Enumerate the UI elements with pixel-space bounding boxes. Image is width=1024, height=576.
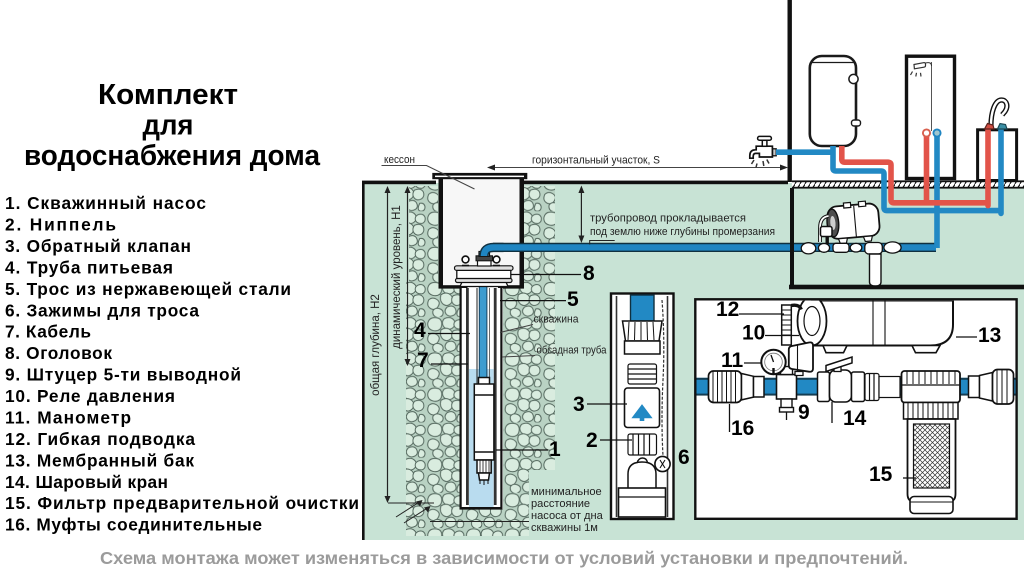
svg-text:4. Труба питьевая: 4. Труба питьевая [5,257,173,277]
svg-text:Схема монтажа может изменяться: Схема монтажа может изменяться в зависим… [100,548,908,568]
svg-text:12: 12 [716,298,739,321]
svg-text:6: 6 [678,446,690,469]
svg-text:12. Гибкая подводка: 12. Гибкая подводка [5,429,195,449]
svg-text:3. Обратный клапан: 3. Обратный клапан [5,236,191,256]
svg-text:общая глубина, Н2: общая глубина, Н2 [370,294,382,396]
svg-text:Комплект: Комплект [98,79,238,111]
svg-text:скважина: скважина [534,314,580,326]
svg-text:2: 2 [586,429,598,452]
svg-text:16. Муфты соединительные: 16. Муфты соединительные [5,515,262,535]
svg-text:8: 8 [583,262,595,285]
svg-text:15: 15 [869,463,893,486]
svg-text:13. Мембранный бак: 13. Мембранный бак [5,450,194,470]
svg-text:1. Скважинный насос: 1. Скважинный насос [5,193,206,213]
svg-text:14: 14 [843,407,867,430]
svg-text:10. Реле давления: 10. Реле давления [5,386,175,406]
svg-text:3: 3 [573,393,585,416]
svg-text:7. Кабель: 7. Кабель [5,322,91,342]
svg-text:16: 16 [731,417,754,440]
svg-text:минимальное: минимальное [531,486,602,498]
svg-text:кессон: кессон [384,154,415,166]
svg-text:10: 10 [742,322,765,345]
svg-text:1: 1 [549,438,561,461]
svg-text:11. Манометр: 11. Манометр [5,408,131,428]
svg-text:9. Штуцер 5-ти выводной: 9. Штуцер 5-ти выводной [5,365,241,385]
svg-text:насоса от дна: насоса от дна [531,510,604,522]
svg-text:расстояние: расстояние [531,498,590,510]
svg-text:горизонтальный участок, S: горизонтальный участок, S [532,155,660,167]
svg-text:9: 9 [798,401,810,424]
svg-text:11: 11 [721,349,744,372]
svg-text:13: 13 [978,324,1001,347]
svg-text:под землю ниже глубины промерз: под землю ниже глубины промерзания [590,226,775,238]
svg-text:трубопровод прокладывается: трубопровод прокладывается [590,213,746,225]
svg-text:14. Шаровый кран: 14. Шаровый кран [5,472,168,492]
svg-text:5. Трос из нержавеющей стали: 5. Трос из нержавеющей стали [5,279,291,299]
svg-text:скважины 1м: скважины 1м [531,522,598,534]
svg-text:водоснабжения дома: водоснабжения дома [24,140,321,172]
svg-text:4: 4 [414,319,426,342]
svg-text:для: для [143,110,194,142]
svg-text:15. Фильтр предварительной очи: 15. Фильтр предварительной очистки [5,493,359,513]
svg-text:6. Зажимы для троса: 6. Зажимы для троса [5,300,199,320]
svg-text:динамический уровень, Н1: динамический уровень, Н1 [391,205,403,349]
svg-text:обсадная труба: обсадная труба [537,345,608,357]
svg-text:8. Оголовок: 8. Оголовок [5,343,112,363]
svg-text:5: 5 [567,288,579,311]
svg-text:7: 7 [417,349,429,372]
